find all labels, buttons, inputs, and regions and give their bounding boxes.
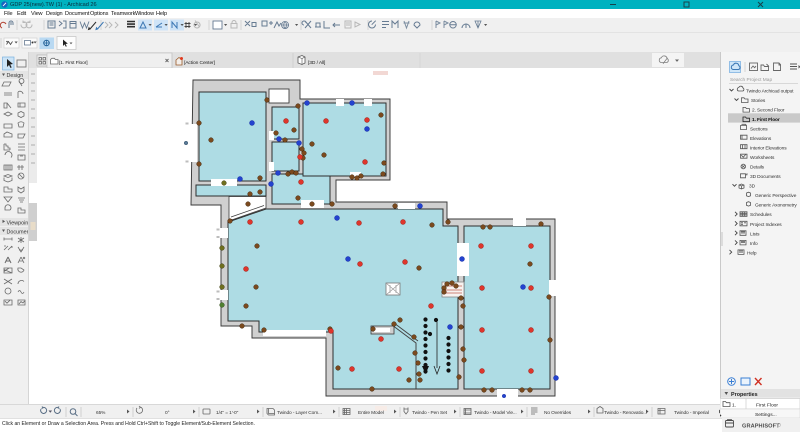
svg-text:1.: 1. bbox=[732, 403, 736, 409]
svg-text:2. Second Floor: 2. Second Floor bbox=[752, 107, 785, 113]
svg-text:Twindo - Pen Set: Twindo - Pen Set bbox=[412, 410, 448, 416]
svg-text:Interior Elevations: Interior Elevations bbox=[750, 146, 787, 152]
svg-text:Details: Details bbox=[750, 165, 765, 171]
svg-text:Document: Document bbox=[7, 229, 29, 235]
svg-text:Search Project Map: Search Project Map bbox=[730, 77, 772, 83]
svg-text:Help: Help bbox=[747, 250, 757, 256]
svg-text:Properties: Properties bbox=[731, 392, 758, 398]
svg-text:Twindo - Model Vie...: Twindo - Model Vie... bbox=[474, 410, 517, 416]
svg-text:Design: Design bbox=[7, 73, 24, 79]
svg-text:0°: 0° bbox=[165, 410, 170, 416]
svg-text:Schedules: Schedules bbox=[750, 212, 772, 218]
svg-text:[Action Center]: [Action Center] bbox=[184, 60, 216, 66]
svg-text:Generic Perspective: Generic Perspective bbox=[755, 193, 797, 199]
svg-text:1. First Floor: 1. First Floor bbox=[752, 117, 780, 123]
svg-text:Entire Model: Entire Model bbox=[358, 410, 384, 416]
svg-text:Info: Info bbox=[750, 241, 758, 247]
svg-text:Lists: Lists bbox=[750, 231, 760, 237]
svg-text:Sections: Sections bbox=[750, 126, 768, 132]
svg-text:Twindo Archicad output: Twindo Archicad output bbox=[746, 88, 794, 94]
svg-text:Twindo - Layer Com...: Twindo - Layer Com... bbox=[277, 410, 322, 416]
svg-text:3D Documents: 3D Documents bbox=[750, 174, 781, 180]
svg-text:No Overrides: No Overrides bbox=[544, 410, 572, 416]
svg-text:First Floor: First Floor bbox=[756, 403, 778, 409]
svg-text:Viewpoint: Viewpoint bbox=[7, 220, 29, 226]
svg-text:[3D / All]: [3D / All] bbox=[308, 60, 326, 66]
svg-text:Twindo - Renovatio...: Twindo - Renovatio... bbox=[604, 410, 647, 416]
svg-text:Project Indexes: Project Indexes bbox=[750, 222, 782, 228]
svg-text:Generic Axonometry: Generic Axonometry bbox=[755, 203, 797, 209]
svg-text:[1. First Floor]: [1. First Floor] bbox=[59, 60, 88, 66]
svg-text:3D: 3D bbox=[749, 184, 756, 190]
svg-text:Worksheets: Worksheets bbox=[750, 155, 775, 161]
svg-text:1/4" = 1'-0": 1/4" = 1'-0" bbox=[216, 410, 239, 416]
svg-text:Stories: Stories bbox=[751, 98, 766, 104]
svg-text:Twindo - Imperial: Twindo - Imperial bbox=[674, 410, 709, 416]
svg-text:65%: 65% bbox=[96, 410, 106, 416]
svg-text:GRAPHISOFT: GRAPHISOFT bbox=[742, 424, 780, 430]
svg-text:Settings...: Settings... bbox=[755, 412, 777, 418]
svg-text:Elevations: Elevations bbox=[750, 136, 772, 142]
svg-text:O: O bbox=[777, 423, 781, 429]
